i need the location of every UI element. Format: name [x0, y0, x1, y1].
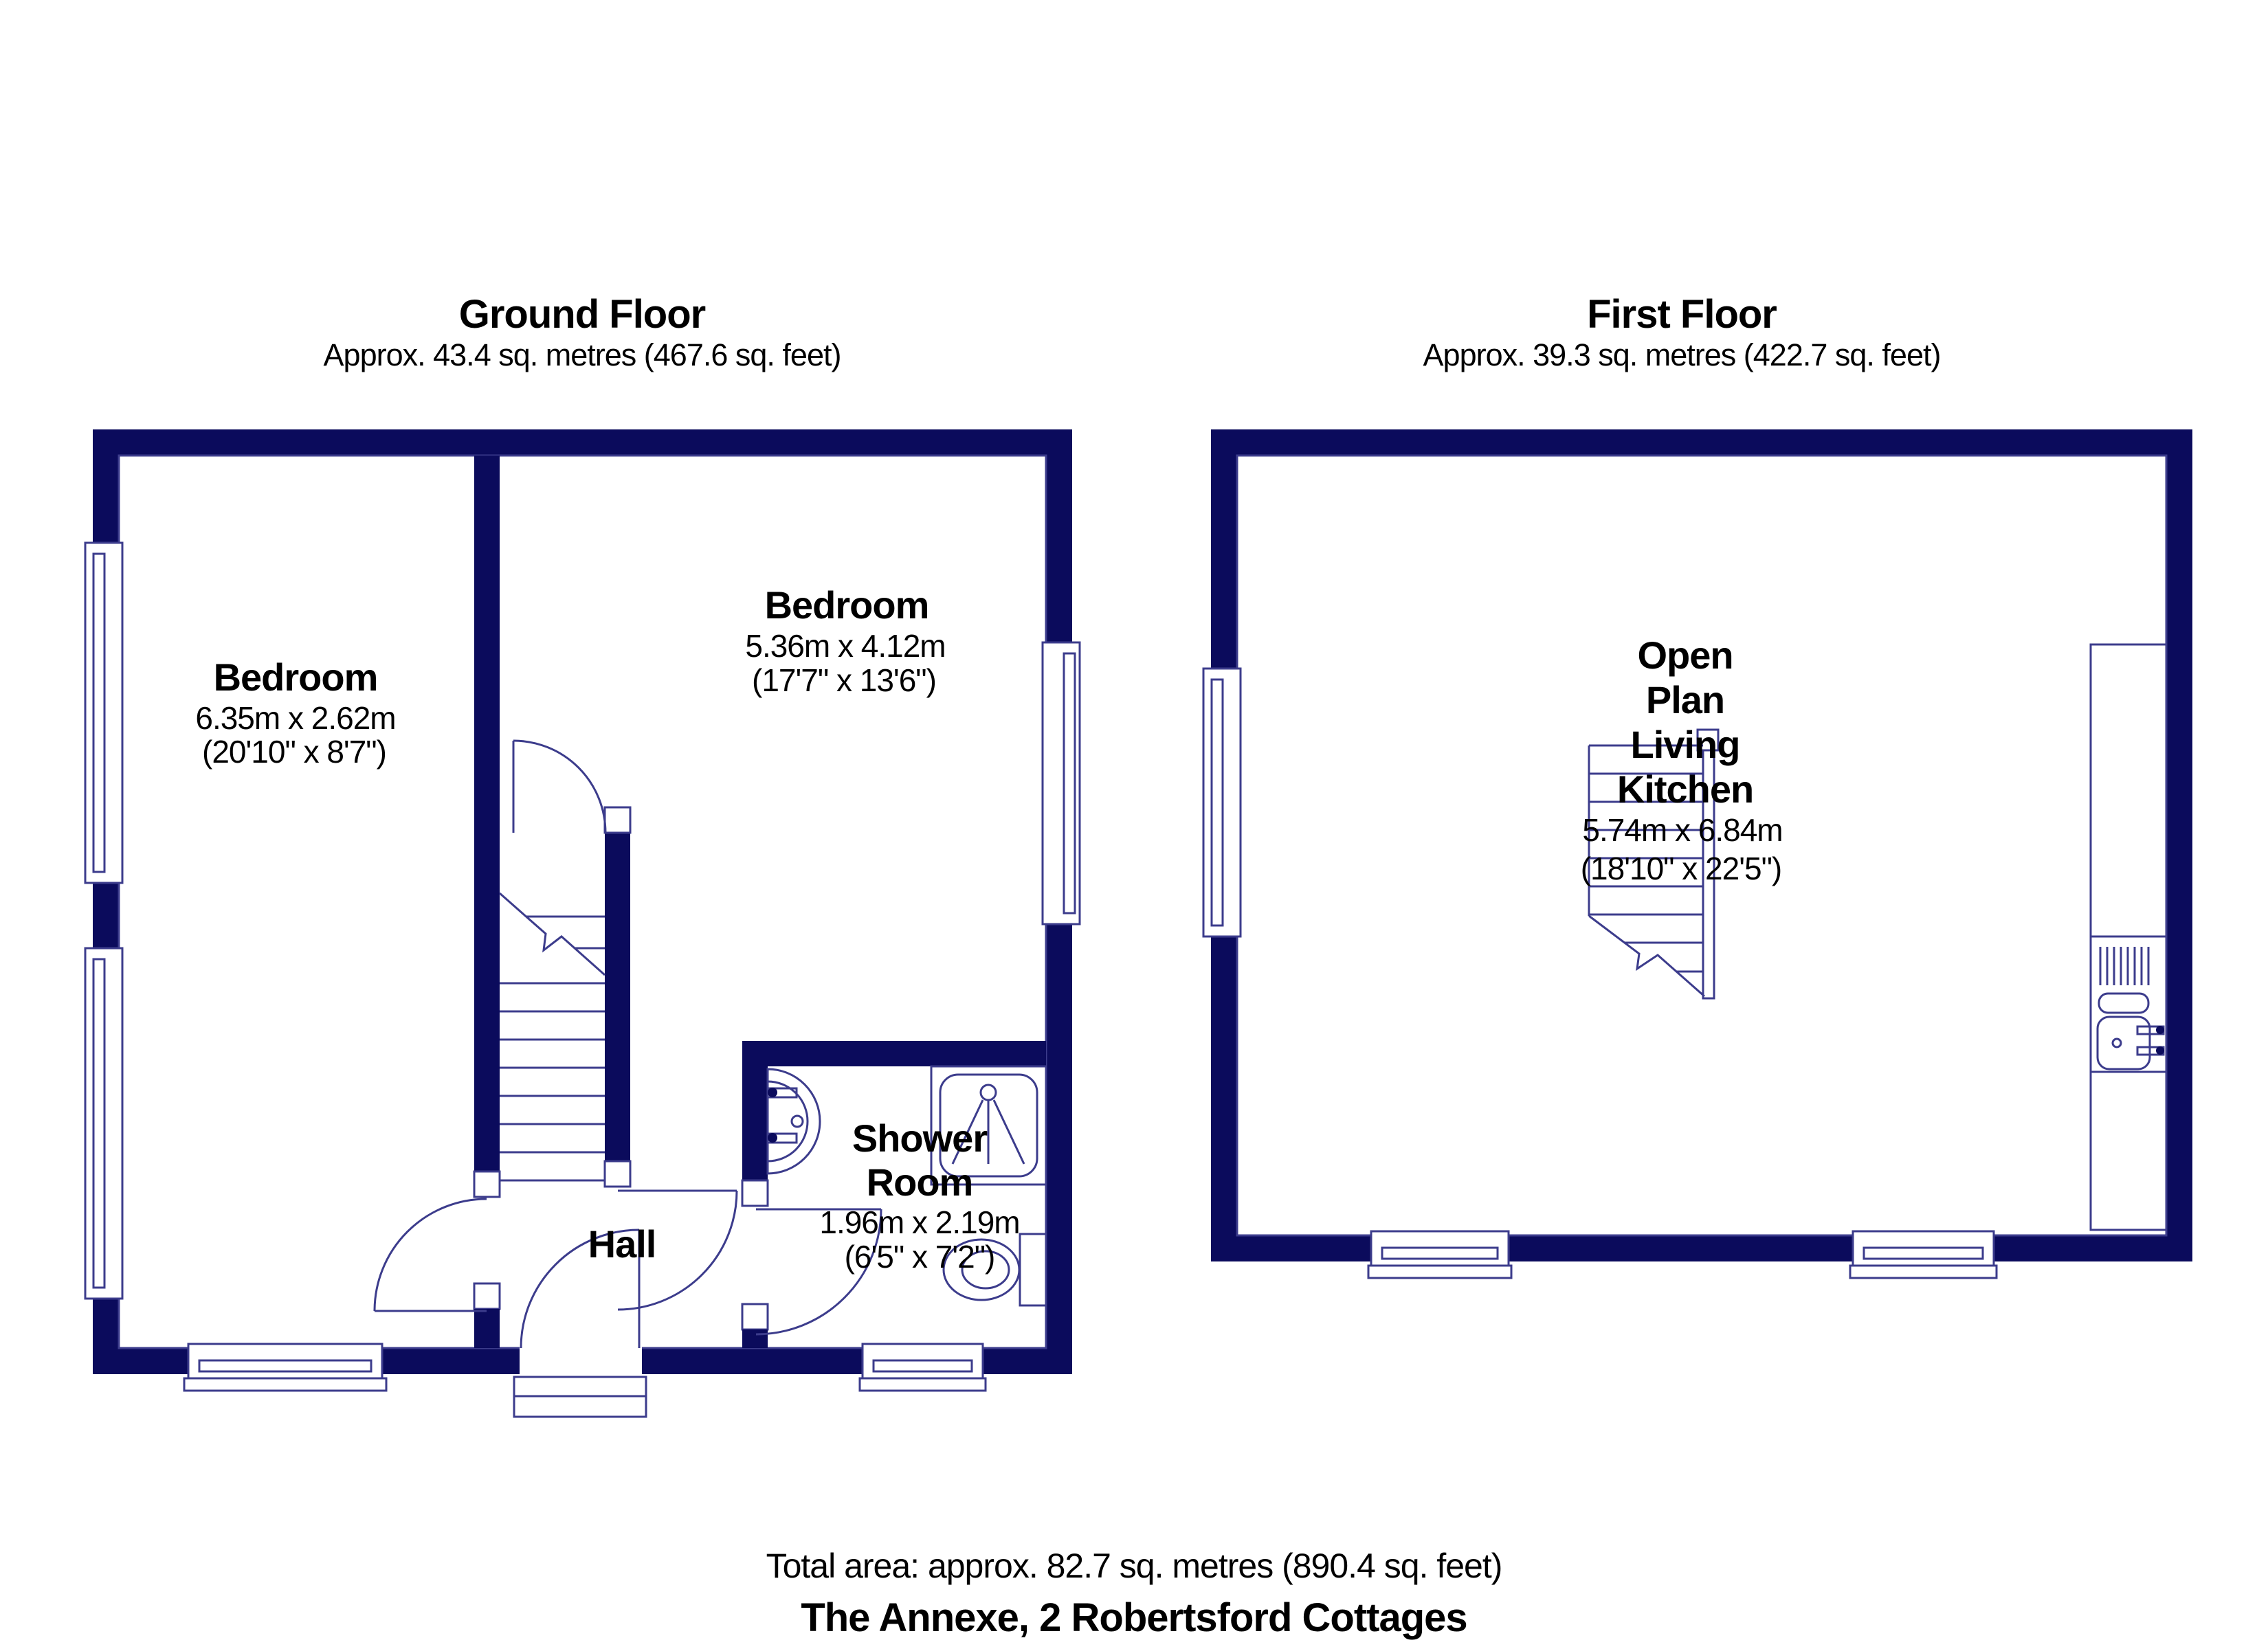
room-name: Kitchen	[1617, 767, 1753, 811]
door-arc	[375, 1199, 487, 1311]
room-name: Living	[1631, 723, 1740, 766]
room-name: Room	[867, 1160, 973, 1204]
ground-floor-plan: Ground Floor Approx. 43.4 sq. metres (46…	[85, 292, 1080, 1417]
first-floor-title: First Floor	[1587, 292, 1777, 337]
bedroom-right-label: Bedroom 5.36m x 4.12m (17'7" x 13'6")	[745, 583, 945, 698]
ground-floor-area: Approx. 43.4 sq. metres (467.6 sq. feet)	[324, 337, 841, 372]
room-name: Bedroom	[765, 583, 929, 627]
footer: Total area: approx. 82.7 sq. metres (890…	[766, 1547, 1502, 1640]
hall-label: Hall	[588, 1222, 656, 1266]
bedroom-left-label: Bedroom 6.35m x 2.62m (20'10" x 8'7")	[195, 655, 395, 770]
property-name: The Annexe, 2 Robertsford Cottages	[801, 1595, 1467, 1640]
room-name: Plan	[1646, 678, 1724, 721]
room-dims-imperial: (17'7" x 13'6")	[752, 662, 936, 698]
window	[1850, 1231, 1997, 1278]
total-area-text: Total area: approx. 82.7 sq. metres (890…	[766, 1547, 1502, 1585]
room-dims-imperial: (20'10" x 8'7")	[202, 734, 386, 770]
sink-icon	[768, 1069, 820, 1174]
ground-floor-title: Ground Floor	[459, 292, 706, 337]
room-dims-metric: 5.36m x 4.12m	[745, 628, 945, 664]
bedroom-right-door	[513, 741, 605, 833]
window	[1043, 642, 1080, 924]
room-name: Open	[1637, 633, 1733, 677]
window	[85, 543, 122, 883]
staircase-ground	[500, 893, 605, 1180]
window	[184, 1344, 386, 1391]
stair-break-line	[1589, 916, 1704, 996]
door-arc	[513, 741, 605, 833]
shower-room-label: Shower Room 1.96m x 2.19m (6'5" x 7'2")	[819, 1117, 1019, 1275]
room-dims-metric: 5.74m x 6.84m	[1582, 812, 1782, 848]
kitchen-counter	[2091, 644, 2166, 1230]
stair-break-line	[500, 893, 605, 975]
window	[860, 1344, 986, 1391]
bedroom-left-door	[375, 1199, 487, 1311]
window	[1368, 1231, 1511, 1278]
floorplan-canvas: Ground Floor Approx. 43.4 sq. metres (46…	[0, 0, 2268, 1649]
open-plan-label: Open Plan Living Kitchen 5.74m x 6.84m (…	[1581, 633, 1783, 886]
room-name: Shower	[852, 1117, 987, 1160]
room-dims-imperial: (6'5" x 7'2")	[845, 1239, 995, 1275]
window	[1203, 669, 1241, 936]
room-name: Bedroom	[214, 655, 378, 699]
first-floor-area: Approx. 39.3 sq. metres (422.7 sq. feet)	[1423, 337, 1941, 372]
room-dims-imperial: (18'10" x 22'5")	[1581, 851, 1782, 886]
room-dims-metric: 6.35m x 2.62m	[195, 700, 395, 736]
window	[85, 948, 122, 1299]
first-floor-plan: First Floor Approx. 39.3 sq. metres (422…	[1203, 292, 2192, 1278]
first-floor-windows	[1203, 669, 1997, 1278]
room-dims-metric: 1.96m x 2.19m	[819, 1204, 1019, 1240]
